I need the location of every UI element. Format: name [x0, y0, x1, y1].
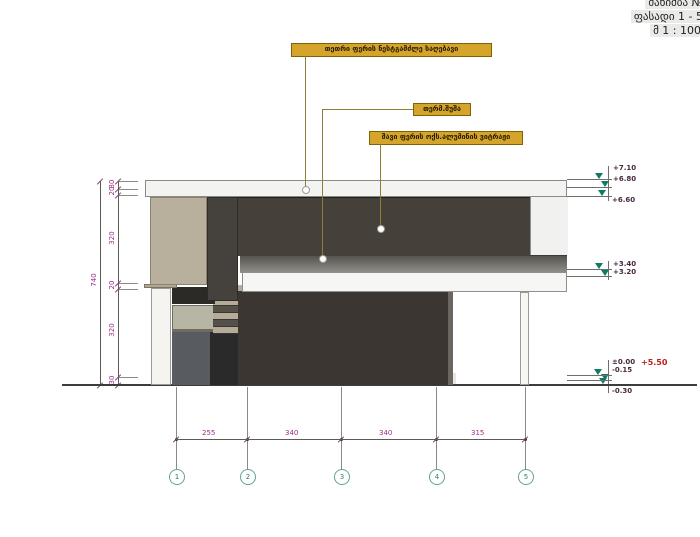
level-line-±0.00: [567, 375, 612, 376]
axis-bubble-5: 5: [518, 469, 534, 485]
level-value: +6.60: [612, 196, 635, 204]
leader-line-vitrage: [380, 144, 381, 226]
dim-left-chain-line: [118, 181, 119, 385]
dim-left-ext-0: [118, 181, 138, 182]
leader-dot-vitrage: [377, 225, 385, 233]
dim-left-value: 20: [108, 277, 116, 293]
level-value: +3.20: [613, 268, 636, 276]
level-value: +3.40: [613, 260, 636, 268]
level-value: -0.15: [612, 366, 632, 374]
roof-slab: [145, 180, 567, 197]
titleblock-line-1: მანიშბა №: [645, 0, 700, 9]
axis-bubble-2: 2: [240, 469, 256, 485]
gray-slab-left: [172, 332, 210, 385]
dim-bottom-value: 255: [202, 429, 215, 437]
dim-left-total-value: 740: [90, 270, 98, 290]
level-line--0.15: [567, 380, 612, 381]
dim-left-ext-2: [118, 195, 138, 196]
axis-line-3: [341, 387, 342, 469]
dark-wall-1f: [238, 292, 448, 385]
dim-bottom-value: 315: [471, 429, 484, 437]
dim-left-ext-5: [118, 377, 138, 378]
level-line-+6.60: [567, 196, 612, 197]
level-value: -0.30: [612, 387, 632, 395]
level-line-+3.20: [567, 276, 612, 277]
dim-bottom-line: [176, 439, 525, 440]
axis-line-1: [176, 387, 177, 469]
level-line-+7.10: [567, 179, 612, 180]
leader-line-glass-h: [322, 109, 413, 110]
titleblock-line-2: ფასადი 1 - 5: [631, 10, 700, 23]
white-strip-wall: [151, 288, 171, 385]
dim-left-ext-3: [118, 283, 138, 284]
elevation-drawing-sheet: 54321 მანიშბა № ფასადი 1 - 5 მ 1 : 100 თ…: [0, 0, 700, 537]
axis-bubble-3: 3: [334, 469, 350, 485]
balcony-slab: [240, 255, 567, 273]
level-line-+6.80: [567, 187, 612, 188]
axis-line-5: [525, 387, 526, 469]
dim-left-value: 320: [108, 322, 116, 338]
axis-line-4: [436, 387, 437, 469]
callout-glass-label: თერმ.შუშა: [413, 103, 471, 116]
beige-panel-upper: [150, 197, 207, 285]
dim-left-value: 30: [108, 372, 116, 388]
charcoal-panel: [207, 197, 238, 301]
axis-bubble-4: 4: [429, 469, 445, 485]
leader-dot-glass: [319, 255, 327, 263]
leader-dot-paint: [302, 186, 310, 194]
level-value: +7.10: [613, 164, 636, 172]
dim-left-value: 320: [108, 230, 116, 246]
floor-slab-band: [242, 272, 567, 292]
callout-paint-label: თეთრი ფერის ნესტგამძლე საღებავი: [291, 43, 492, 57]
wall-edge-1f: [448, 292, 453, 385]
level-value: ±0.00: [612, 358, 635, 366]
dim-left-ext-1: [118, 189, 138, 190]
titleblock-line-3: მ 1 : 100: [650, 24, 700, 37]
leader-line-paint: [305, 56, 306, 187]
leader-line-glass-v: [322, 109, 323, 256]
carport-column: [520, 292, 529, 385]
axis-bubble-1: 1: [169, 469, 185, 485]
axis-line-2: [247, 387, 248, 469]
dim-left-ext-4: [118, 289, 138, 290]
level-line-+3.40: [567, 269, 612, 270]
dim-bottom-value: 340: [379, 429, 392, 437]
wall-corner-2f: [530, 197, 568, 255]
level-value-extra: +5.50: [641, 358, 667, 367]
dim-left-value: 20: [108, 183, 116, 199]
dim-bottom-value: 340: [285, 429, 298, 437]
dim-left-total-line: [100, 181, 101, 385]
level-value: +6.80: [613, 175, 636, 183]
callout-vitrage-label: შავი ფერის ოქს.ალუმინის ვიტრაჟი: [369, 131, 523, 145]
